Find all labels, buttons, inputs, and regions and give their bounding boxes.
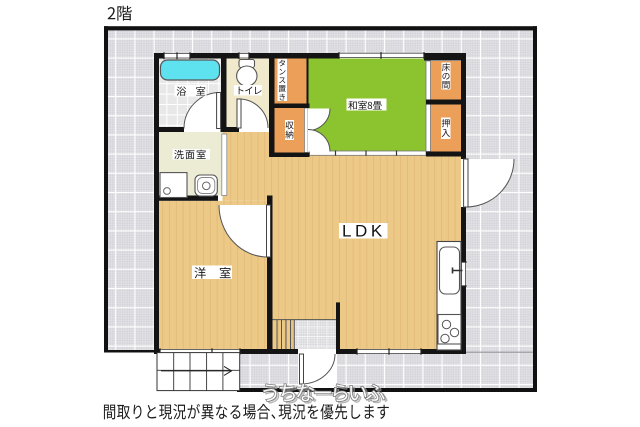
svg-text:LDK: LDK <box>342 222 386 241</box>
